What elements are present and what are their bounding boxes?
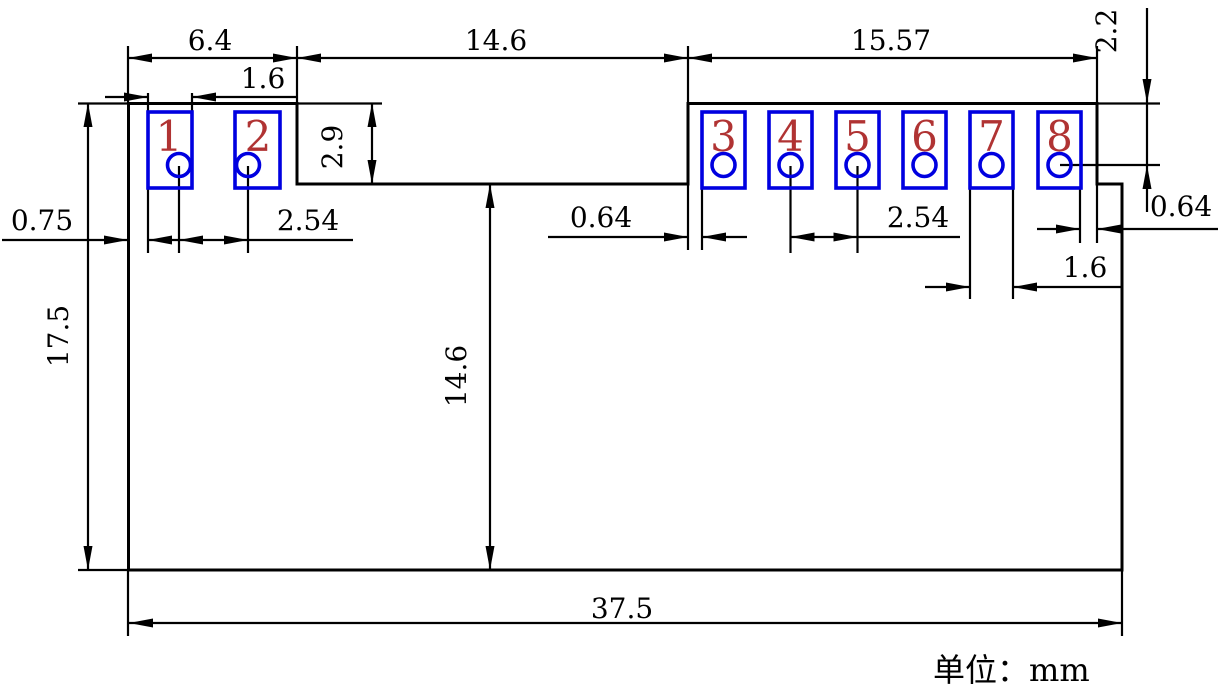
arrowhead [84, 103, 93, 127]
dim-board-height: 17.5 [42, 305, 75, 367]
pad-number: 3 [710, 112, 737, 161]
pad-number: 5 [844, 112, 871, 161]
arrowhead [1013, 283, 1037, 292]
arrowhead [84, 546, 93, 570]
arrowhead [946, 283, 970, 292]
pad-3: 3 [702, 112, 745, 188]
pad-5: 5 [836, 112, 879, 188]
dim-top-width-left: 6.4 [188, 24, 233, 57]
arrowhead [688, 54, 712, 63]
dim-pad7-width: 1.6 [1063, 251, 1108, 284]
arrowhead [1143, 165, 1152, 189]
pad-1: 1 [148, 112, 192, 188]
dim-notch-to-bottom: 14.6 [440, 345, 473, 407]
pad-number: 4 [777, 112, 804, 161]
dim-top-width-right: 15.57 [851, 24, 931, 57]
arrowhead [702, 233, 726, 242]
pad-number: 2 [245, 112, 272, 161]
arrowhead [834, 233, 858, 242]
arrowhead [1073, 54, 1097, 63]
arrowhead [486, 184, 495, 208]
arrowhead [791, 233, 815, 242]
pad-number: 1 [156, 112, 183, 161]
arrowhead [1097, 225, 1121, 234]
dim-pad1-width: 1.6 [241, 62, 286, 95]
pad-7: 7 [970, 112, 1013, 188]
arrowhead [224, 236, 248, 245]
pad-8: 8 [1038, 112, 1081, 188]
pad-number: 7 [978, 112, 1005, 161]
unit-note: 单位：mm [933, 651, 1090, 689]
dim-pad8-to-edge: 0.64 [1150, 190, 1212, 223]
arrowhead [1056, 225, 1080, 234]
dim-hole-pitch-right: 2.54 [887, 201, 949, 234]
dim-notch-depth: 2.9 [316, 125, 349, 170]
arrowhead [368, 160, 377, 184]
arrowhead [148, 236, 172, 245]
arrowhead [128, 54, 152, 63]
dim-board-width: 37.5 [591, 592, 653, 625]
technical-drawing: 1 2 3 4 5 6 7 [0, 0, 1225, 692]
dimension-lines [2, 8, 1218, 623]
pads: 1 2 3 4 5 6 7 [148, 112, 1081, 188]
arrowhead [1143, 79, 1152, 103]
dim-top-edge-to-hole: 2.2 [1090, 9, 1123, 54]
arrowhead [486, 546, 495, 570]
arrowhead [368, 103, 377, 127]
drawing-canvas: 1 2 3 4 5 6 7 [0, 0, 1225, 692]
pad-4: 4 [769, 112, 812, 188]
pad-6: 6 [903, 112, 946, 188]
pad-number: 6 [911, 112, 938, 161]
arrowhead [664, 54, 688, 63]
dim-left-edge-to-pad: 0.75 [11, 204, 73, 237]
pad-2: 2 [235, 112, 280, 188]
pad-number: 8 [1046, 112, 1073, 161]
arrowhead [129, 619, 153, 628]
arrowhead [297, 54, 321, 63]
arrowhead [104, 236, 128, 245]
arrowhead [192, 93, 216, 102]
arrowhead [664, 233, 688, 242]
arrowhead [124, 93, 148, 102]
dim-hole-pitch-left: 2.54 [277, 204, 339, 237]
board-outline [129, 104, 1123, 571]
arrowhead [179, 236, 203, 245]
dim-step-to-pad3: 0.64 [570, 201, 632, 234]
arrowhead [1098, 619, 1122, 628]
dim-top-notch-width: 14.6 [465, 24, 527, 57]
